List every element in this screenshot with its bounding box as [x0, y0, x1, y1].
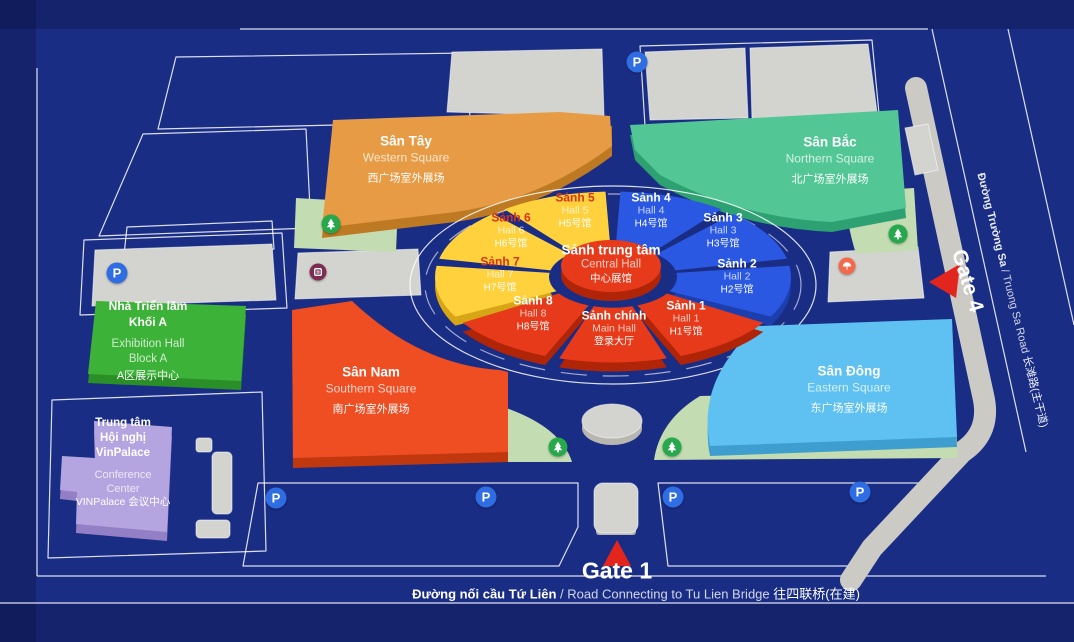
- tree-icon: [322, 215, 341, 234]
- hall-8-label: Sảnh 8 Hall 8 H8号馆: [513, 293, 552, 332]
- hall-1-label: Sảnh 1 Hall 1 H1号馆: [666, 298, 705, 337]
- eastern-square-label: Sân Đông Eastern Square 东广场室外展场: [807, 364, 890, 417]
- gate1-building: [594, 483, 638, 533]
- hall-6-label: Sảnh 6 Hall 6 H6号馆: [491, 210, 530, 249]
- parking-icon: P: [663, 487, 684, 508]
- tree-icon: [549, 438, 568, 457]
- parking-icon: P: [266, 488, 287, 509]
- vinpalace-label: Trung tâm Hội nghị VinPalace Conference …: [76, 416, 171, 510]
- hall-7-label: Sảnh 7 Hall 7 H7号馆: [480, 254, 519, 293]
- gate1-label: Gate 1: [582, 558, 652, 585]
- hall-4-label: Sảnh 4 Hall 4 H4号馆: [631, 190, 670, 229]
- tree-icon: [663, 438, 682, 457]
- exhibition-site-map: Sân Tây Western Square 西广场室外展场 Sân Bắc N…: [0, 0, 1074, 642]
- parking-lot-southwest: [243, 483, 578, 566]
- roundabout: [582, 404, 642, 438]
- hall-2-label: Sảnh 2 Hall 2 H2号馆: [717, 256, 756, 295]
- hall-5-label: Sảnh 5 Hall 5 H5号馆: [555, 190, 594, 229]
- central-hall-label: Sảnh trung tâm Central Hall 中心展馆: [561, 243, 660, 286]
- parking-icon: P: [850, 482, 871, 503]
- hall-3-label: Sảnh 3 Hall 3 H3号馆: [703, 210, 742, 249]
- parking-icon: P: [107, 263, 128, 284]
- northern-square-label: Sân Bắc Northern Square 北广场室外展场: [786, 135, 875, 188]
- block-a-label: Nhà Triển lãm Khối A Exhibition Hall Blo…: [109, 299, 188, 383]
- main-hall-label: Sảnh chính Main Hall 登录大厅: [582, 308, 647, 347]
- restroom-icon: [310, 264, 327, 281]
- parking-icon: P: [627, 52, 648, 73]
- emergency-icon: [839, 258, 856, 275]
- western-square-label: Sân Tây Western Square 西广场室外展场: [363, 134, 450, 187]
- tree-icon: [889, 225, 908, 244]
- parking-structure-north: [645, 48, 748, 120]
- service-block-east: [828, 247, 924, 302]
- southern-square-label: Sân Nam Southern Square 南广场室外展场: [326, 365, 417, 418]
- parking-icon: P: [476, 487, 497, 508]
- south-road-label: Đường nối cầu Tứ Liên / Road Connecting …: [412, 584, 860, 603]
- gate1-structures: [582, 404, 642, 535]
